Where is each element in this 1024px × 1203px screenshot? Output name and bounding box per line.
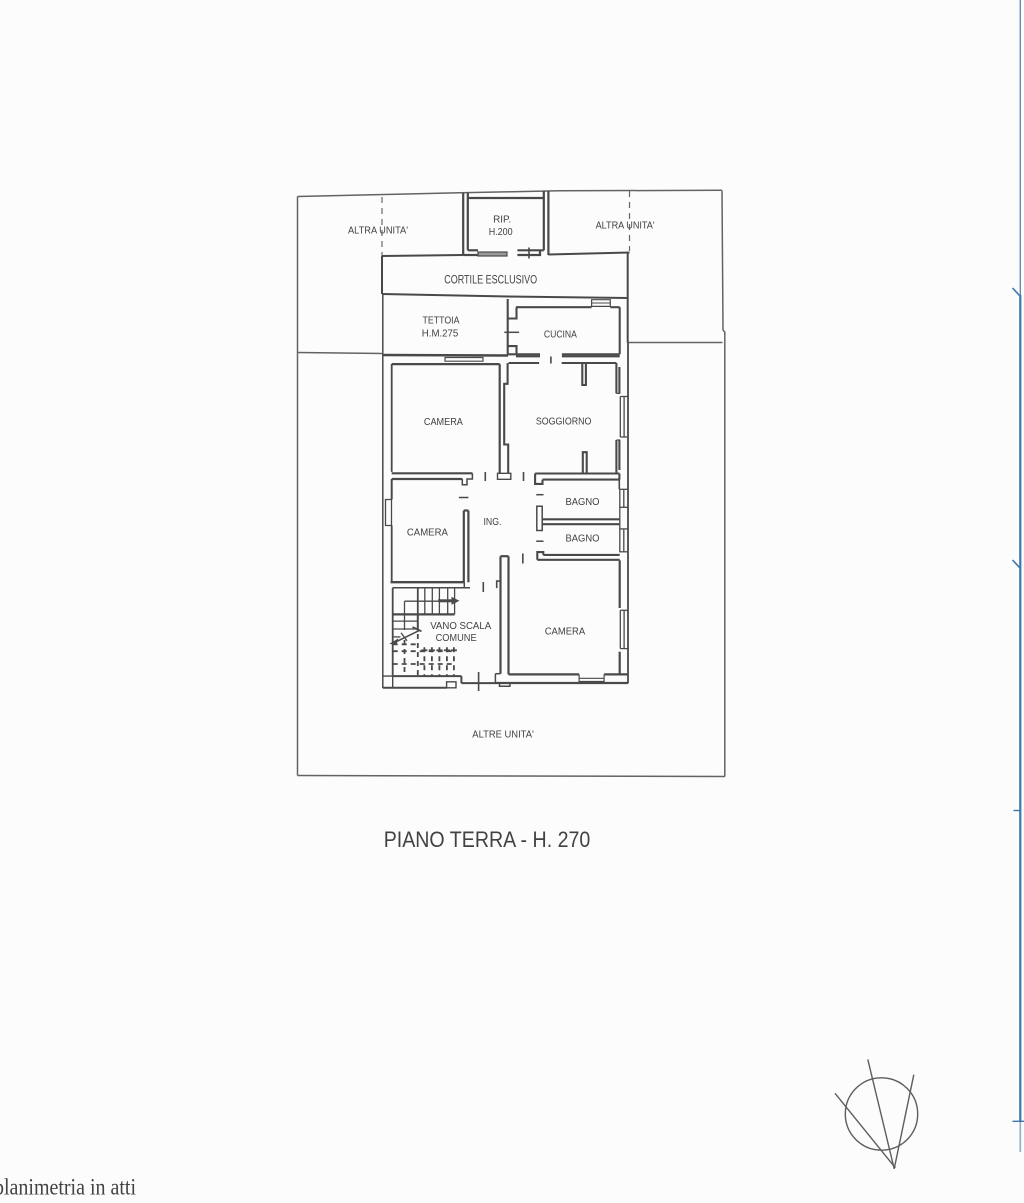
- svg-text:ING.: ING.: [484, 517, 502, 528]
- svg-text:TETTOIA: TETTOIA: [423, 315, 460, 326]
- svg-text:ALTRA UNITA': ALTRA UNITA': [596, 221, 655, 232]
- svg-text:BAGNO: BAGNO: [566, 534, 600, 545]
- svg-text:BAGNO: BAGNO: [566, 497, 600, 508]
- svg-text:CORTILE ESCLUSIVO: CORTILE ESCLUSIVO: [444, 273, 537, 287]
- svg-text:CAMERA: CAMERA: [407, 528, 448, 539]
- svg-text:H.200: H.200: [489, 227, 513, 238]
- svg-text:ALTRA UNITA': ALTRA UNITA': [348, 226, 408, 237]
- svg-text:CUCINA: CUCINA: [544, 330, 577, 341]
- svg-text:VANO SCALA: VANO SCALA: [430, 621, 491, 632]
- svg-text:H.M.275: H.M.275: [422, 328, 459, 339]
- svg-text:planimetria in atti: planimetria in atti: [0, 1175, 136, 1200]
- svg-text:SOGGIORNO: SOGGIORNO: [536, 416, 592, 427]
- svg-text:RIP.: RIP.: [493, 215, 511, 226]
- svg-text:CAMERA: CAMERA: [424, 417, 463, 428]
- svg-text:CAMERA: CAMERA: [545, 627, 586, 638]
- svg-text:COMUNE: COMUNE: [436, 633, 477, 644]
- svg-text:PIANO TERRA - H. 270: PIANO TERRA - H. 270: [384, 827, 591, 852]
- svg-text:ALTRE UNITA': ALTRE UNITA': [472, 729, 534, 740]
